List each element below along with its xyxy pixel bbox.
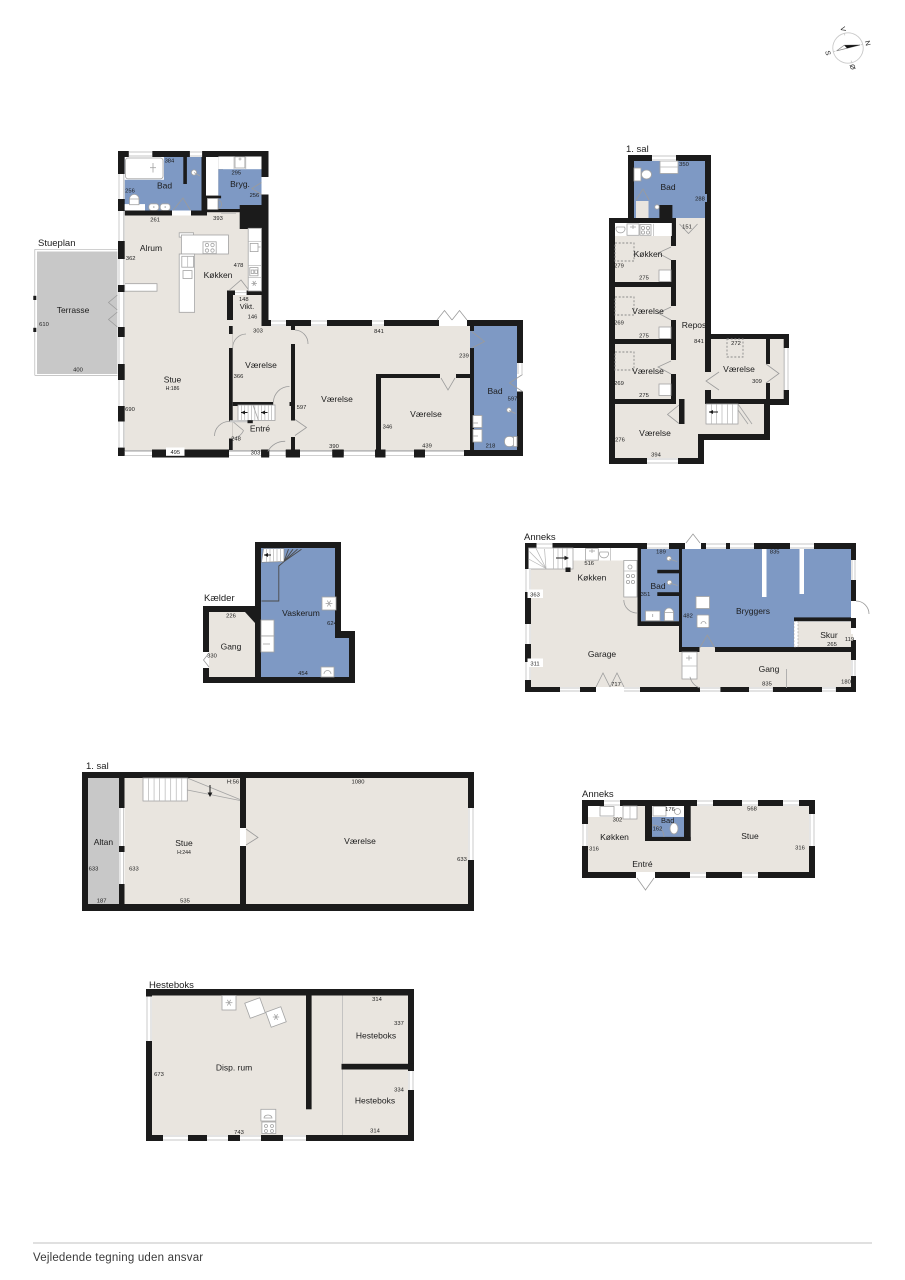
- svg-text:279: 279: [614, 264, 624, 270]
- svg-text:302: 302: [613, 818, 623, 824]
- svg-text:275: 275: [639, 393, 649, 399]
- svg-text:Værelse: Værelse: [410, 409, 442, 419]
- svg-text:265: 265: [827, 642, 837, 648]
- svg-text:189: 189: [656, 550, 666, 556]
- svg-text:303: 303: [253, 329, 263, 335]
- svg-text:334: 334: [394, 1088, 404, 1094]
- svg-text:288: 288: [695, 197, 705, 203]
- svg-text:350: 350: [679, 162, 689, 168]
- svg-text:309: 309: [752, 379, 762, 385]
- svg-text:162: 162: [653, 827, 663, 833]
- svg-text:400: 400: [73, 368, 83, 374]
- svg-text:Disp. rum: Disp. rum: [216, 1063, 252, 1073]
- svg-text:276: 276: [615, 438, 625, 444]
- svg-text:717: 717: [611, 682, 621, 688]
- svg-text:439: 439: [422, 444, 432, 450]
- svg-text:Værelse: Værelse: [632, 306, 664, 316]
- svg-text:Altan: Altan: [94, 837, 114, 847]
- svg-text:Køkken: Køkken: [204, 270, 233, 280]
- svg-text:316: 316: [795, 846, 805, 852]
- svg-text:Stue: Stue: [175, 838, 193, 848]
- svg-text:H:244: H:244: [177, 850, 191, 856]
- svg-text:Gang: Gang: [759, 664, 780, 674]
- svg-text:119: 119: [845, 637, 854, 643]
- svg-text:187: 187: [97, 899, 107, 905]
- svg-text:363: 363: [530, 593, 540, 599]
- svg-text:330: 330: [207, 654, 217, 660]
- svg-text:239: 239: [459, 354, 469, 360]
- svg-text:841: 841: [374, 329, 384, 335]
- svg-text:151: 151: [682, 225, 692, 231]
- svg-text:316: 316: [589, 847, 599, 853]
- svg-text:176: 176: [665, 807, 675, 813]
- svg-text:1080: 1080: [352, 780, 365, 786]
- svg-text:673: 673: [154, 1072, 164, 1078]
- svg-text:248: 248: [231, 437, 241, 443]
- svg-text:633: 633: [89, 867, 99, 873]
- svg-text:Vaskerum: Vaskerum: [282, 608, 320, 618]
- svg-text:Værelse: Værelse: [632, 366, 664, 376]
- svg-text:633: 633: [457, 857, 467, 863]
- svg-text:314: 314: [370, 1129, 380, 1135]
- svg-text:Repos: Repos: [682, 320, 707, 330]
- svg-text:Bryggers: Bryggers: [736, 606, 770, 616]
- svg-text:Entré: Entré: [632, 859, 653, 869]
- svg-text:841: 841: [694, 339, 704, 345]
- svg-text:1. sal: 1. sal: [626, 144, 649, 155]
- svg-text:Køkken: Køkken: [577, 573, 606, 583]
- svg-text:Kælder: Kælder: [204, 593, 235, 604]
- svg-text:597: 597: [508, 397, 518, 403]
- svg-text:275: 275: [639, 334, 649, 340]
- svg-text:Køkken: Køkken: [634, 249, 663, 259]
- svg-text:256: 256: [125, 189, 135, 195]
- svg-text:295: 295: [231, 171, 241, 177]
- svg-text:Bad: Bad: [661, 816, 674, 825]
- svg-text:Hesteboks: Hesteboks: [356, 1031, 396, 1041]
- svg-text:Anneks: Anneks: [524, 532, 556, 543]
- svg-text:Værelse: Værelse: [723, 364, 755, 374]
- svg-text:835: 835: [770, 550, 780, 556]
- svg-text:346: 346: [383, 425, 393, 431]
- svg-text:314: 314: [372, 997, 382, 1003]
- svg-text:148: 148: [239, 297, 249, 303]
- svg-text:516: 516: [584, 561, 594, 567]
- svg-text:351: 351: [641, 592, 651, 598]
- svg-text:180: 180: [841, 680, 851, 686]
- svg-text:269: 269: [614, 381, 624, 387]
- svg-text:366: 366: [234, 374, 244, 380]
- svg-text:Bad: Bad: [650, 581, 665, 591]
- svg-text:Bad: Bad: [157, 181, 172, 191]
- svg-text:275: 275: [639, 276, 649, 282]
- svg-text:H:56: H:56: [227, 780, 239, 786]
- svg-text:743: 743: [234, 1130, 244, 1136]
- svg-text:624: 624: [327, 621, 337, 627]
- svg-text:Vejledende tegning uden ansvar: Vejledende tegning uden ansvar: [33, 1252, 203, 1264]
- svg-text:Køkken: Køkken: [600, 832, 629, 842]
- svg-text:H:186: H:186: [166, 386, 180, 392]
- svg-text:Entré: Entré: [250, 424, 271, 434]
- svg-text:256: 256: [250, 193, 260, 199]
- svg-text:393: 393: [213, 216, 223, 222]
- svg-text:597: 597: [297, 405, 307, 411]
- svg-text:Bad: Bad: [487, 386, 502, 396]
- svg-text:Vikt.: Vikt.: [240, 302, 254, 311]
- svg-text:Værelse: Værelse: [321, 394, 353, 404]
- svg-text:Værelse: Værelse: [344, 836, 376, 846]
- svg-text:Stue: Stue: [741, 831, 759, 841]
- svg-text:272: 272: [731, 341, 741, 347]
- svg-text:690: 690: [125, 407, 135, 413]
- svg-text:Skur: Skur: [820, 630, 838, 640]
- svg-text:226: 226: [226, 614, 236, 620]
- svg-text:146: 146: [248, 314, 258, 320]
- svg-text:269: 269: [614, 321, 624, 327]
- svg-text:535: 535: [180, 899, 190, 905]
- svg-text:478: 478: [234, 263, 244, 269]
- svg-text:218: 218: [486, 444, 496, 450]
- svg-text:390: 390: [329, 444, 339, 450]
- svg-text:311: 311: [530, 662, 539, 668]
- svg-text:Værelse: Værelse: [245, 360, 277, 370]
- svg-text:495: 495: [170, 450, 180, 456]
- svg-text:Terrasse: Terrasse: [57, 305, 90, 315]
- svg-text:Stueplan: Stueplan: [38, 238, 76, 249]
- svg-text:Gang: Gang: [221, 642, 242, 652]
- svg-text:Alrum: Alrum: [140, 243, 162, 253]
- svg-text:384: 384: [165, 159, 175, 165]
- svg-text:Værelse: Værelse: [639, 428, 671, 438]
- svg-text:Bryg.: Bryg.: [230, 179, 250, 189]
- svg-text:394: 394: [651, 453, 661, 459]
- svg-text:Stue: Stue: [164, 375, 182, 385]
- svg-text:Hesteboks: Hesteboks: [355, 1096, 395, 1106]
- svg-text:303: 303: [251, 450, 261, 456]
- svg-text:Garage: Garage: [588, 649, 617, 659]
- svg-text:1. sal: 1. sal: [86, 761, 109, 772]
- svg-text:568: 568: [747, 807, 757, 813]
- svg-text:835: 835: [762, 682, 772, 688]
- svg-text:362: 362: [126, 256, 136, 262]
- svg-text:454: 454: [298, 671, 308, 677]
- svg-text:633: 633: [129, 867, 139, 873]
- svg-text:610: 610: [39, 322, 49, 328]
- svg-text:Bad: Bad: [660, 182, 675, 192]
- svg-text:482: 482: [683, 614, 693, 620]
- svg-text:261: 261: [150, 218, 160, 224]
- svg-text:337: 337: [394, 1021, 404, 1027]
- svg-text:Anneks: Anneks: [582, 789, 614, 800]
